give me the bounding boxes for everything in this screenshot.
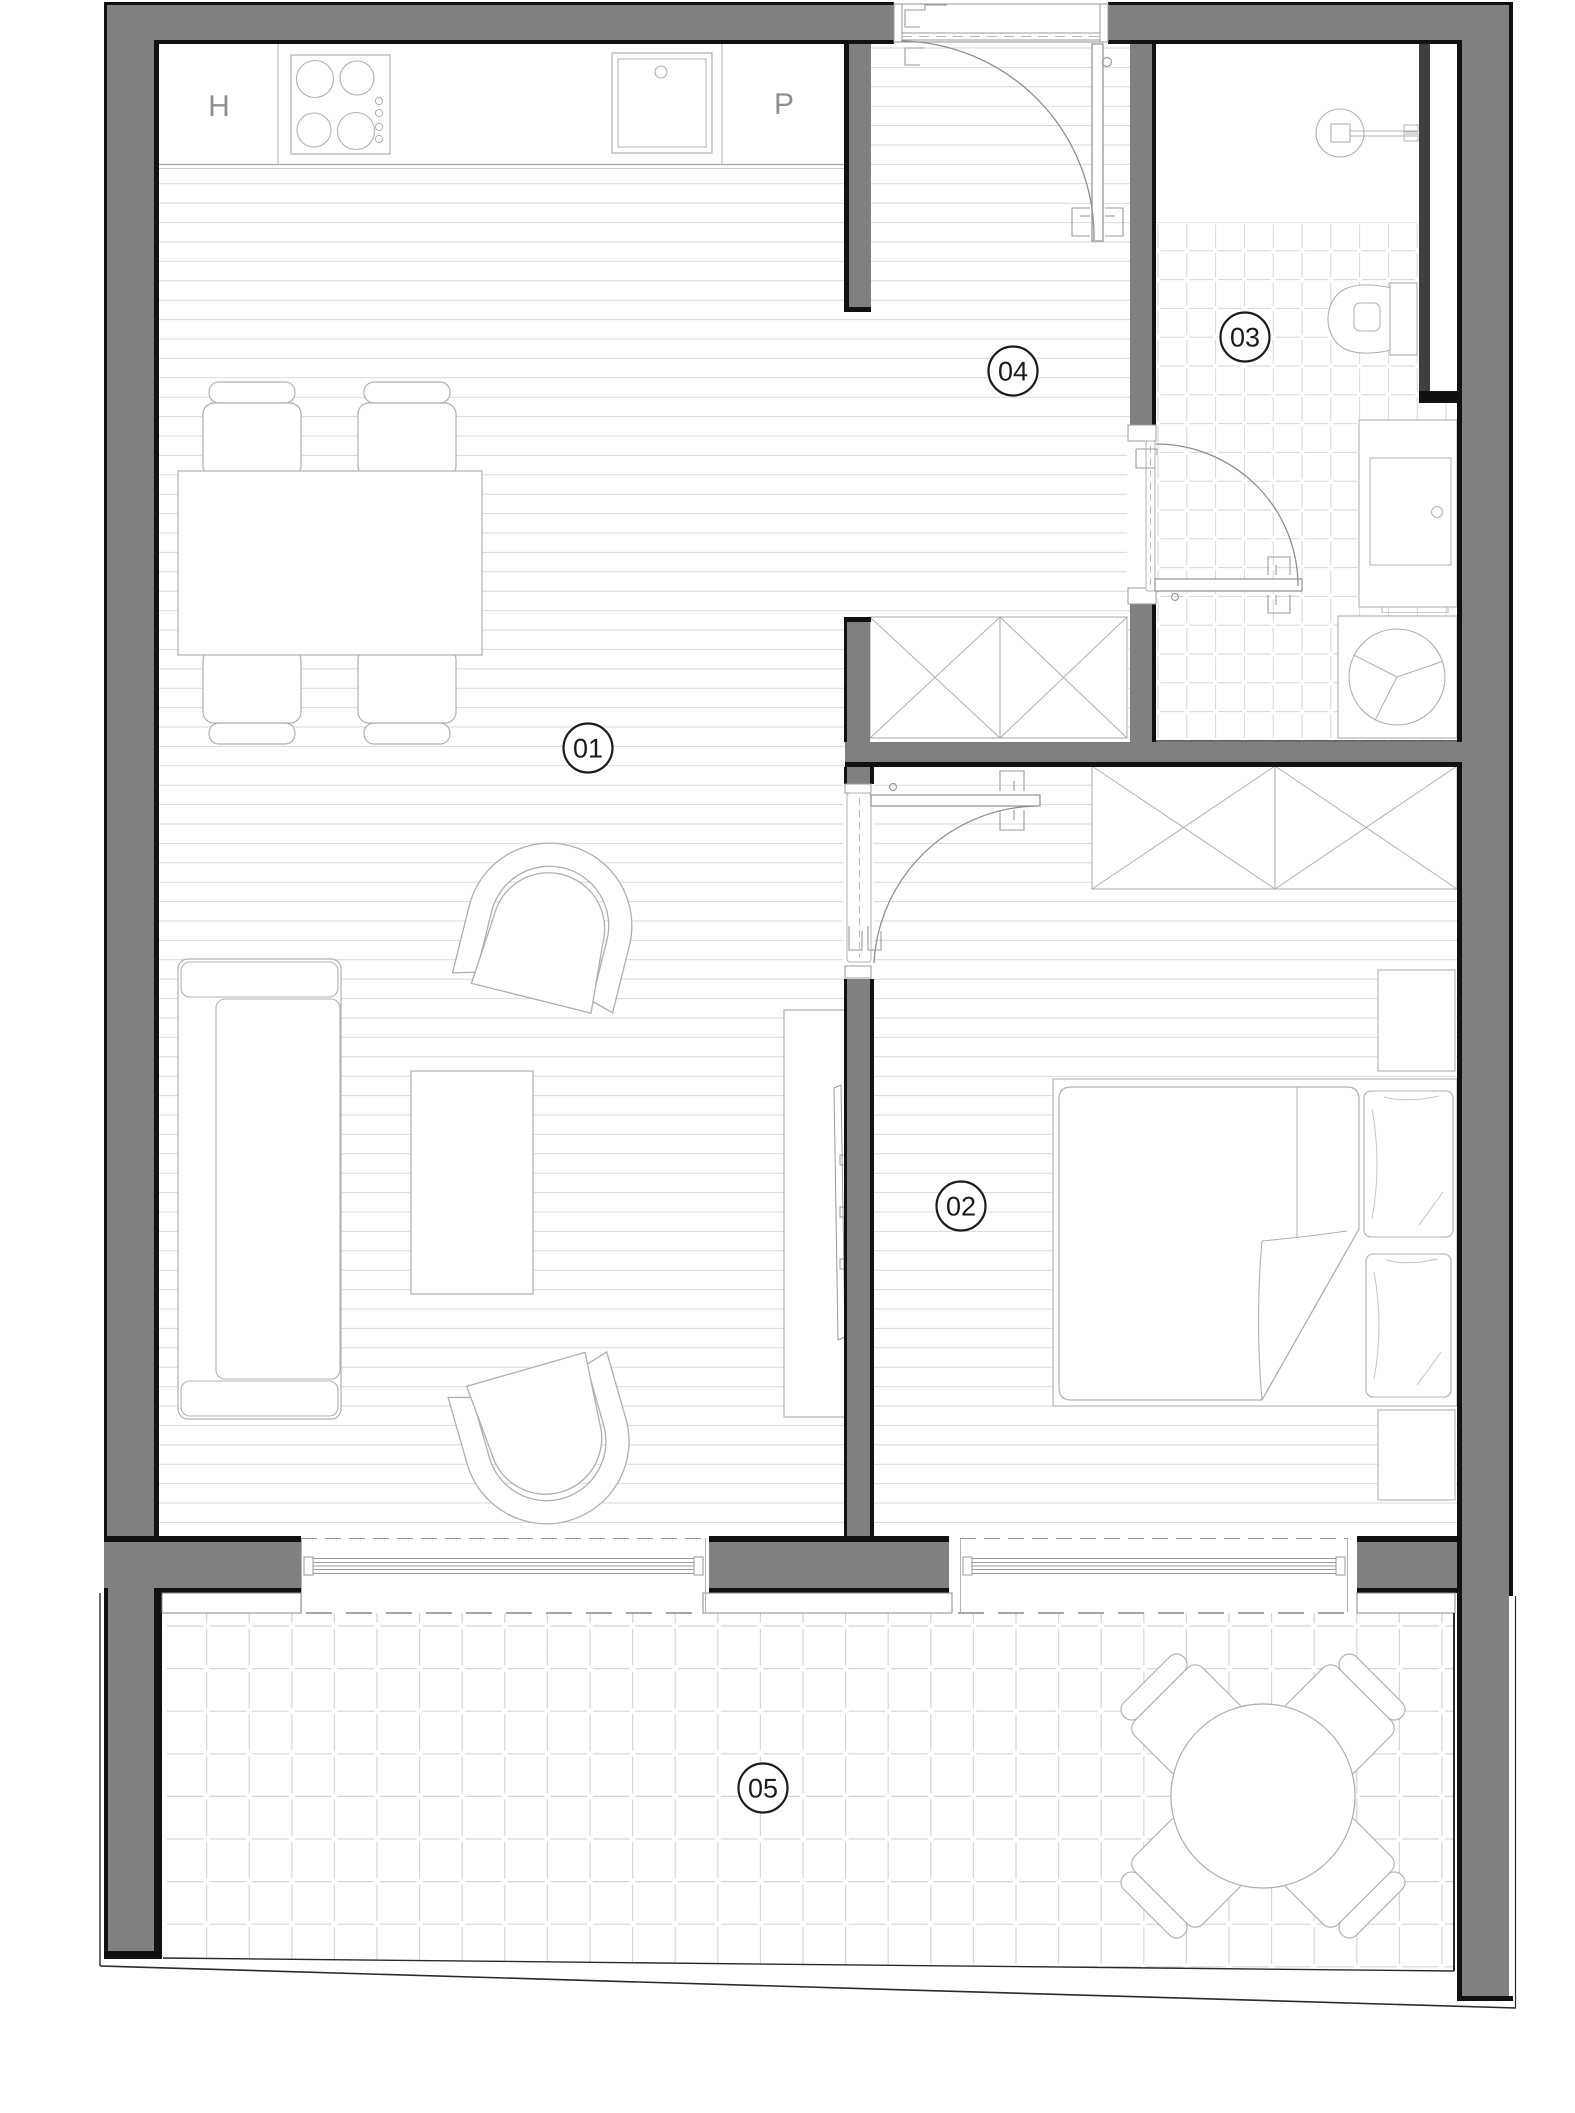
svg-text:01: 01 <box>573 734 603 764</box>
svg-text:P: P <box>774 88 794 121</box>
svg-text:05: 05 <box>748 1774 778 1804</box>
svg-text:H: H <box>208 90 230 123</box>
svg-text:03: 03 <box>1230 323 1260 353</box>
svg-text:04: 04 <box>998 357 1028 387</box>
svg-text:02: 02 <box>946 1192 976 1222</box>
